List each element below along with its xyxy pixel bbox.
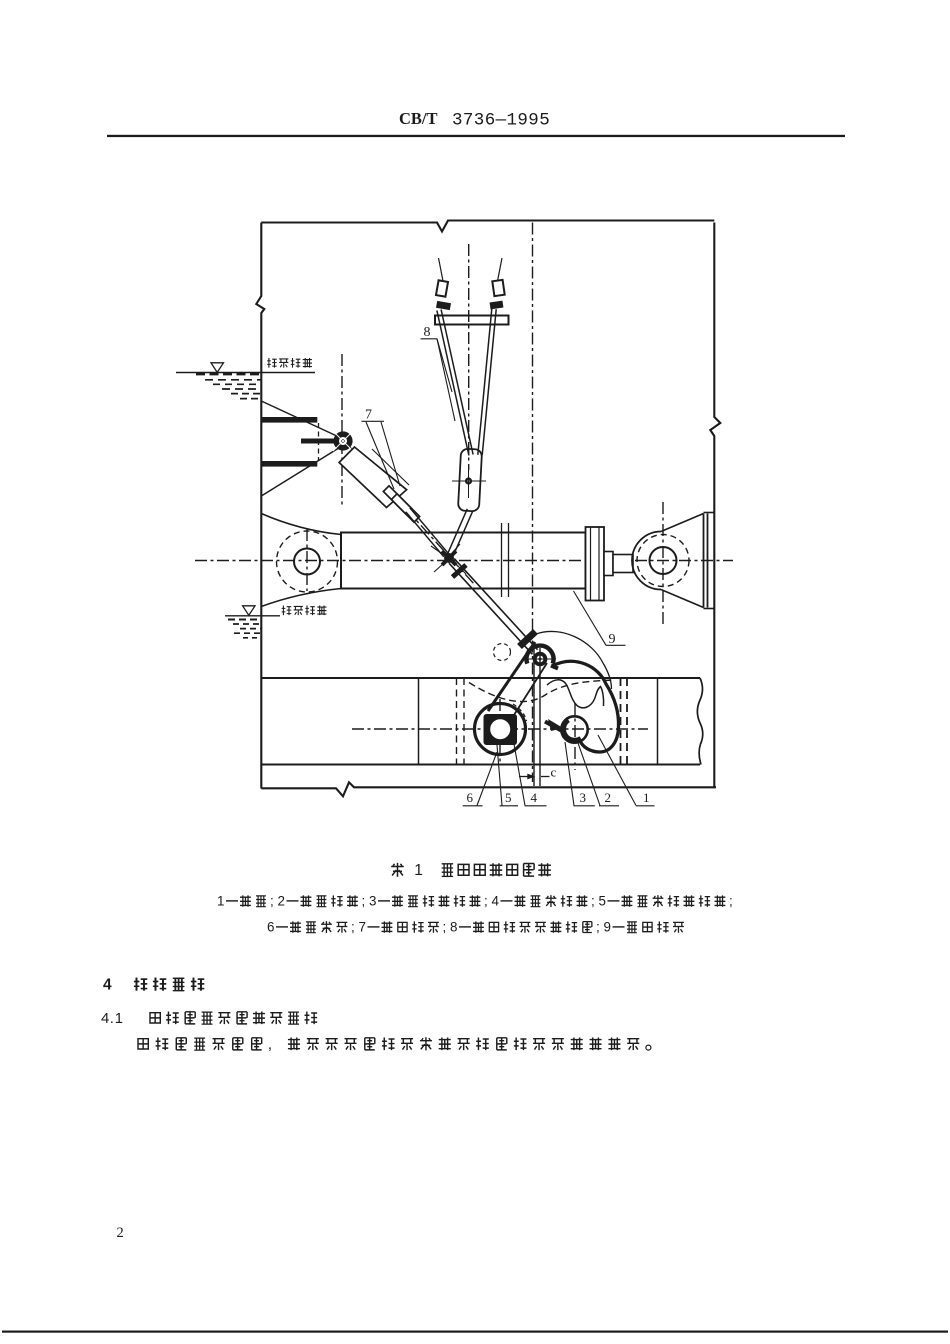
- svg-text:5: 5: [599, 894, 606, 909]
- svg-text:8: 8: [450, 920, 457, 935]
- svg-text:4: 4: [103, 976, 112, 993]
- svg-text:1: 1: [115, 1011, 123, 1027]
- svg-text:1: 1: [643, 790, 650, 805]
- svg-text:;: ;: [729, 894, 733, 909]
- svg-text:7: 7: [359, 920, 366, 935]
- svg-text:6: 6: [467, 790, 474, 805]
- svg-text:5: 5: [505, 790, 512, 805]
- svg-text:2: 2: [605, 790, 612, 805]
- svg-text:;: ;: [351, 920, 355, 935]
- svg-text:CB/T: CB/T: [399, 109, 438, 128]
- svg-text:9: 9: [604, 920, 611, 935]
- svg-text:4: 4: [492, 894, 500, 909]
- svg-text:;: ;: [596, 920, 600, 935]
- svg-text:;: ;: [443, 920, 447, 935]
- svg-text:3736—1995: 3736—1995: [452, 111, 550, 131]
- svg-text:;: ;: [484, 894, 488, 909]
- svg-text:2: 2: [117, 1225, 124, 1241]
- svg-text:1: 1: [217, 894, 224, 909]
- svg-text:4: 4: [101, 1011, 109, 1027]
- svg-text:4: 4: [531, 790, 538, 805]
- svg-text:;: ;: [591, 894, 595, 909]
- svg-text:.: .: [110, 1011, 114, 1027]
- svg-text:c: c: [551, 765, 557, 780]
- svg-text:;: ;: [362, 894, 366, 909]
- svg-text:;: ;: [270, 894, 274, 909]
- svg-text:3: 3: [369, 894, 376, 909]
- svg-text:,: ,: [268, 1037, 272, 1053]
- svg-text:7: 7: [365, 408, 372, 423]
- svg-text:6: 6: [267, 920, 274, 935]
- svg-text:1: 1: [414, 862, 423, 879]
- svg-text:3: 3: [580, 790, 587, 805]
- svg-text:2: 2: [278, 894, 285, 909]
- svg-text:8: 8: [424, 325, 431, 340]
